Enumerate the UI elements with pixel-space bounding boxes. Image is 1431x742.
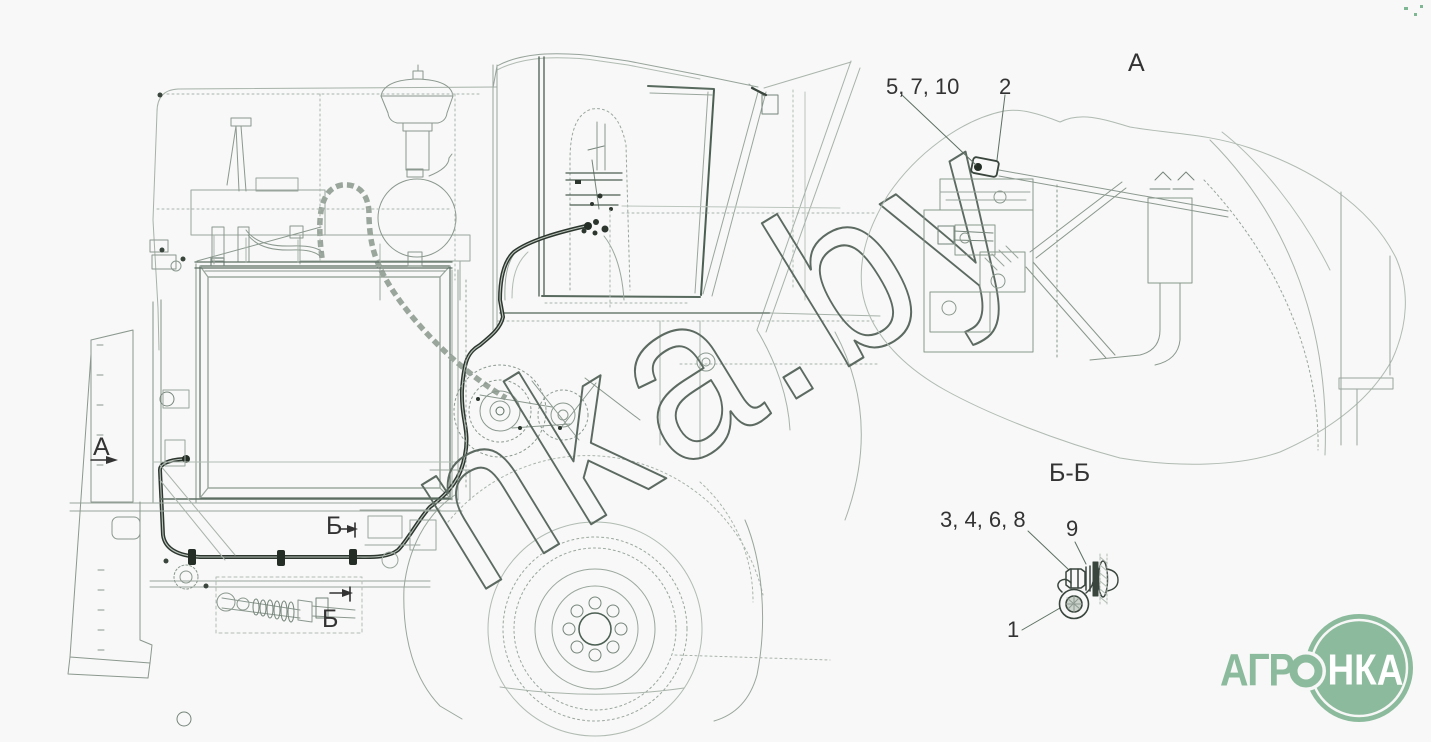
svg-text:АГР: АГР [1220,645,1294,695]
svg-text:nka.by: nka.by [365,73,1064,639]
svg-text:Б-Б: Б-Б [1049,459,1090,487]
svg-text:НКА: НКА [1328,644,1404,694]
svg-text:9: 9 [1066,516,1078,541]
svg-text:Б: Б [322,605,338,633]
svg-text:Б: Б [326,512,342,540]
svg-text:А: А [1128,49,1145,77]
svg-text:1: 1 [1007,617,1019,642]
svg-text:3, 4, 6, 8: 3, 4, 6, 8 [940,507,1026,532]
svg-text:5, 7, 10: 5, 7, 10 [886,74,959,99]
svg-text:2: 2 [999,74,1011,99]
